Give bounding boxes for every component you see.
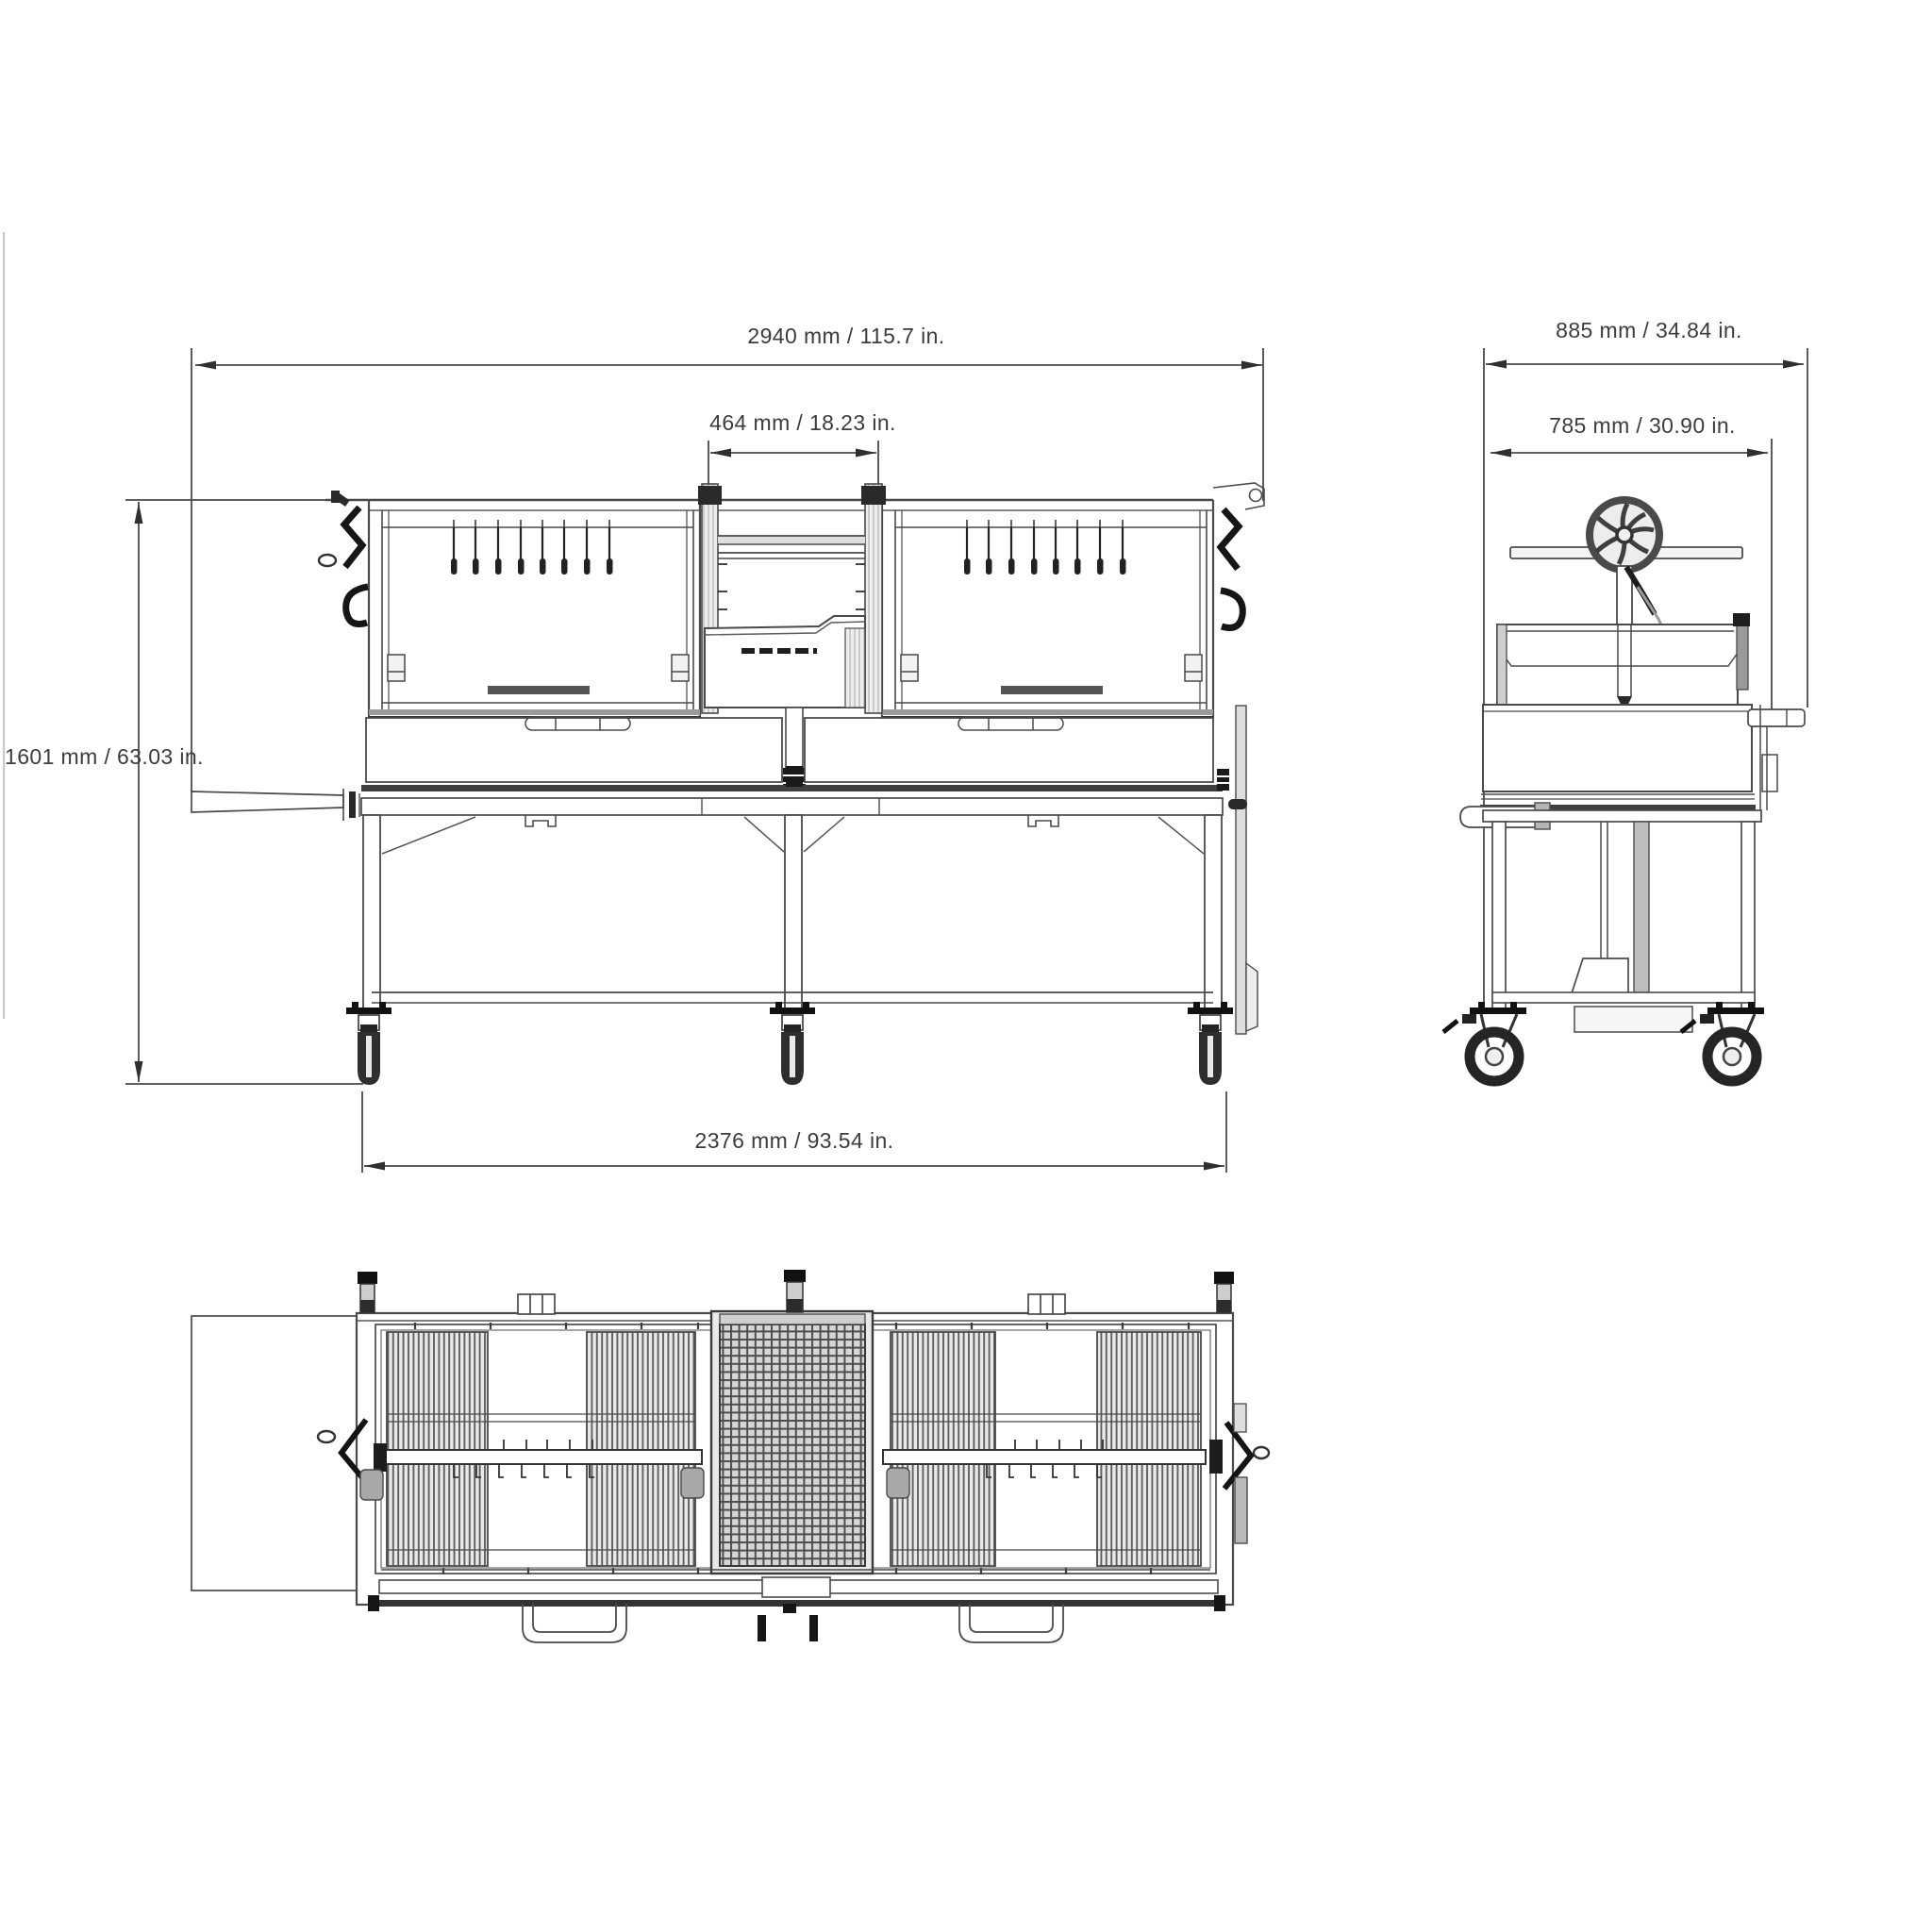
svg-text:1601 mm / 63.03 in.: 1601 mm / 63.03 in. [5, 744, 204, 769]
svg-text:2376 mm / 93.54 in.: 2376 mm / 93.54 in. [695, 1128, 894, 1153]
svg-text:464 mm / 18.23 in.: 464 mm / 18.23 in. [709, 410, 896, 435]
svg-text:2940 mm / 115.7 in.: 2940 mm / 115.7 in. [747, 324, 944, 348]
svg-text:785 mm / 30.90 in.: 785 mm / 30.90 in. [1549, 413, 1736, 438]
svg-text:885 mm / 34.84 in.: 885 mm / 34.84 in. [1556, 318, 1742, 342]
